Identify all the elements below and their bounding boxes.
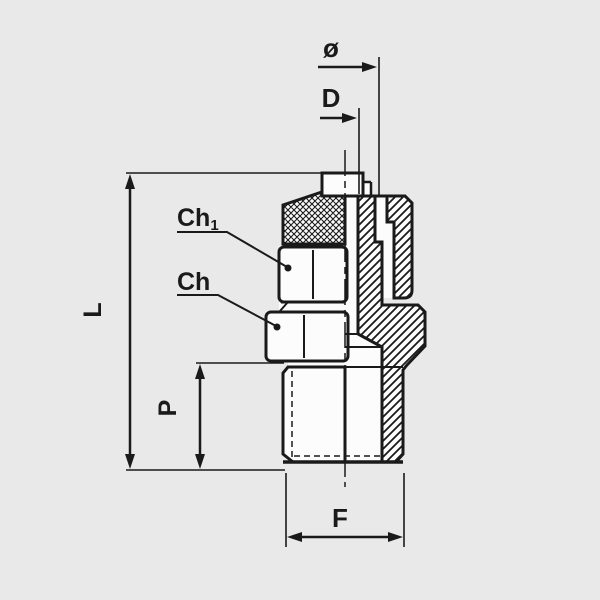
label-ch: Ch (177, 268, 210, 296)
dim-label-p: P (154, 400, 182, 417)
leader-ch1-dot (285, 265, 292, 272)
label-ch1-subscript: 1 (210, 217, 218, 234)
tube-stub (322, 173, 363, 196)
dim-label-f: F (332, 503, 348, 533)
label-ch1-base: Ch (177, 204, 210, 232)
dim-label-l: L (79, 302, 107, 317)
dim-label-diameter: ø (323, 33, 339, 63)
dim-label-d: D (322, 83, 341, 113)
fitting-technical-drawing: ø D L P F Ch1 (0, 0, 600, 600)
leader-ch-dot (274, 324, 281, 331)
drawing-canvas: ø D L P F Ch1 (0, 0, 600, 600)
hex-nut-ch (266, 312, 348, 361)
